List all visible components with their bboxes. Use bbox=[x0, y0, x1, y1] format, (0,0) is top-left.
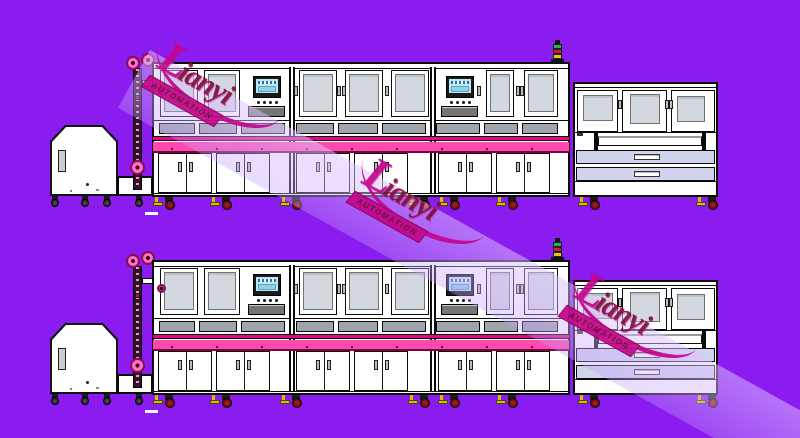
band-rivet-icon bbox=[531, 148, 533, 150]
caster-wheel-icon bbox=[420, 398, 430, 408]
cabinet-door-pair bbox=[296, 351, 350, 391]
door-handle-icon bbox=[178, 360, 182, 370]
elevator-pulley-icon bbox=[126, 254, 140, 268]
control-button-icon bbox=[456, 299, 459, 302]
caster-wheel-icon bbox=[135, 199, 143, 207]
door-split bbox=[186, 154, 187, 192]
leveling-foot-icon bbox=[153, 400, 163, 404]
enclosure-base-line bbox=[153, 391, 569, 392]
vent-window bbox=[382, 321, 426, 332]
door-handle-icon bbox=[337, 284, 341, 294]
door-handle-icon bbox=[385, 360, 389, 370]
cabinet-door-pair bbox=[496, 153, 550, 193]
screen-content bbox=[451, 86, 469, 92]
feeder-detail-dot bbox=[96, 189, 99, 191]
control-screen bbox=[446, 76, 474, 98]
door-split bbox=[186, 352, 187, 390]
door-split bbox=[524, 154, 525, 192]
door-handle-icon bbox=[374, 360, 378, 370]
caster-wheel-icon bbox=[103, 397, 111, 405]
caster-wheel-icon bbox=[508, 398, 518, 408]
feeder-detail-dot bbox=[70, 190, 72, 192]
band-rivet-icon bbox=[216, 346, 218, 348]
control-button-icon bbox=[263, 299, 266, 302]
caster-wheel-icon bbox=[81, 397, 89, 405]
feeder-detail-dot bbox=[86, 381, 89, 384]
door-handle-icon bbox=[477, 86, 481, 96]
window-panel bbox=[160, 268, 198, 315]
band-rivet-icon bbox=[441, 148, 443, 150]
keyboard-tray bbox=[441, 304, 478, 315]
cabinet-door-pair bbox=[216, 351, 270, 391]
window-glass bbox=[164, 272, 194, 310]
window-glass bbox=[528, 74, 554, 112]
leveling-foot-icon bbox=[153, 202, 163, 206]
station-tray-recess bbox=[598, 136, 702, 146]
window-glass bbox=[208, 272, 236, 310]
keyboard-tray bbox=[441, 106, 478, 117]
vent-window bbox=[338, 123, 378, 134]
band-rivet-icon bbox=[486, 346, 488, 348]
leveling-foot-icon bbox=[696, 202, 706, 206]
station-stile bbox=[594, 132, 598, 150]
vent-window bbox=[484, 123, 518, 134]
vent-window bbox=[522, 123, 558, 134]
feeder-vent bbox=[58, 348, 66, 370]
caster-wheel-icon bbox=[81, 199, 89, 207]
screen-content bbox=[258, 279, 276, 282]
vent-window bbox=[296, 321, 334, 332]
door-handle-icon bbox=[327, 360, 331, 370]
window-panel bbox=[345, 268, 383, 315]
door-handle-icon bbox=[669, 100, 673, 109]
band-rivet-icon bbox=[351, 346, 353, 348]
caster-wheel-icon bbox=[165, 398, 175, 408]
door-handle-icon bbox=[247, 360, 251, 370]
leveling-foot-icon bbox=[408, 400, 418, 404]
door-handle-icon bbox=[520, 86, 524, 96]
window-glass bbox=[395, 272, 425, 310]
door-handle-icon bbox=[458, 360, 462, 370]
door-handle-icon bbox=[458, 162, 462, 172]
leveling-foot-icon bbox=[496, 400, 506, 404]
window-panel bbox=[299, 268, 337, 315]
station-window-glass bbox=[583, 95, 613, 121]
vent-window bbox=[199, 321, 237, 332]
band-rivet-icon bbox=[261, 346, 263, 348]
floor-mark bbox=[145, 410, 158, 413]
cabinet-door-pair bbox=[354, 351, 408, 391]
drawer-handle bbox=[634, 171, 660, 177]
door-handle-icon bbox=[385, 86, 389, 96]
door-handle-icon bbox=[469, 162, 473, 172]
elevator-pulley-icon bbox=[130, 160, 145, 175]
window-glass bbox=[303, 74, 333, 112]
window-glass bbox=[349, 272, 379, 310]
window-panel bbox=[345, 70, 383, 117]
station-window-glass bbox=[630, 94, 660, 124]
window-panel bbox=[204, 268, 240, 315]
band-rivet-icon bbox=[396, 148, 398, 150]
cabinet-door-pair bbox=[496, 351, 550, 391]
window-glass bbox=[395, 74, 425, 112]
conveyor-band bbox=[153, 340, 569, 351]
door-split bbox=[466, 352, 467, 390]
elevator-marker bbox=[135, 293, 140, 298]
leveling-foot-icon bbox=[438, 400, 448, 404]
caster-wheel-icon bbox=[590, 398, 600, 408]
door-handle-icon bbox=[385, 284, 389, 294]
band-rivet-icon bbox=[306, 346, 308, 348]
drawing-canvas: Lianyi AUTOMATION Lianyi AUTOMATION Lian… bbox=[0, 0, 800, 438]
door-handle-icon bbox=[516, 360, 520, 370]
door-split bbox=[524, 352, 525, 390]
feeder-detail-dot bbox=[86, 183, 89, 186]
door-handle-icon bbox=[342, 284, 346, 294]
vent-window bbox=[436, 321, 480, 332]
leveling-foot-icon bbox=[578, 202, 588, 206]
feeder-detail-dot bbox=[96, 387, 99, 389]
conveyor-stripe bbox=[153, 334, 569, 339]
vent-window bbox=[296, 123, 334, 134]
door-handle-icon bbox=[316, 360, 320, 370]
control-button-icon bbox=[450, 101, 453, 104]
door-handle-icon bbox=[516, 162, 520, 172]
caster-wheel-icon bbox=[135, 397, 143, 405]
band-rivet-icon bbox=[396, 346, 398, 348]
caster-wheel-icon bbox=[708, 200, 718, 210]
caster-wheel-icon bbox=[222, 398, 232, 408]
control-button-icon bbox=[450, 299, 453, 302]
control-button-icon bbox=[275, 299, 278, 302]
door-handle-icon bbox=[527, 162, 531, 172]
floor-mark bbox=[145, 212, 158, 215]
caster-wheel-icon bbox=[222, 200, 232, 210]
station-roof-line bbox=[574, 87, 717, 88]
station-base-line bbox=[574, 181, 717, 182]
caster-wheel-icon bbox=[103, 199, 111, 207]
leveling-foot-icon bbox=[578, 400, 588, 404]
control-button-icon bbox=[269, 299, 272, 302]
screen-content bbox=[451, 81, 469, 84]
band-rivet-icon bbox=[531, 346, 533, 348]
elevator-pulley-icon bbox=[126, 56, 140, 70]
control-button-icon bbox=[468, 101, 471, 104]
caster-wheel-icon bbox=[450, 398, 460, 408]
door-split bbox=[382, 352, 383, 390]
caster-wheel-icon bbox=[51, 199, 59, 207]
door-handle-icon bbox=[342, 86, 346, 96]
band-rivet-icon bbox=[441, 346, 443, 348]
cabinet-door-pair bbox=[158, 153, 212, 193]
leveling-foot-icon bbox=[210, 202, 220, 206]
keyboard-tray bbox=[248, 304, 285, 315]
leveling-foot-icon bbox=[496, 202, 506, 206]
window-glass bbox=[303, 272, 333, 310]
caster-wheel-icon bbox=[165, 200, 175, 210]
leveling-foot-icon bbox=[280, 400, 290, 404]
vent-window bbox=[241, 321, 285, 332]
door-handle-icon bbox=[618, 100, 622, 109]
door-handle-icon bbox=[337, 86, 341, 96]
band-rivet-icon bbox=[351, 148, 353, 150]
window-panel bbox=[299, 70, 337, 117]
door-split bbox=[324, 352, 325, 390]
door-split bbox=[466, 154, 467, 192]
door-handle-icon bbox=[236, 360, 240, 370]
door-handle-icon bbox=[178, 162, 182, 172]
door-handle-icon bbox=[527, 360, 531, 370]
band-rivet-icon bbox=[171, 346, 173, 348]
vent-window bbox=[159, 321, 195, 332]
station-detail-mark bbox=[577, 133, 583, 136]
window-glass bbox=[490, 74, 510, 112]
band-rivet-icon bbox=[171, 148, 173, 150]
door-handle-icon bbox=[189, 162, 193, 172]
control-button-icon bbox=[456, 101, 459, 104]
vent-window bbox=[382, 123, 426, 134]
leveling-foot-icon bbox=[210, 400, 220, 404]
caster-wheel-icon bbox=[508, 200, 518, 210]
screen-content bbox=[258, 284, 276, 290]
door-handle-icon bbox=[189, 360, 193, 370]
door-split bbox=[244, 352, 245, 390]
vent-window bbox=[338, 321, 378, 332]
vent-window bbox=[436, 123, 480, 134]
control-button-icon bbox=[462, 101, 465, 104]
band-rivet-icon bbox=[486, 148, 488, 150]
caster-wheel-icon bbox=[590, 200, 600, 210]
control-screen bbox=[253, 274, 281, 296]
signal-tower-base bbox=[551, 257, 564, 261]
elevator-pulley-icon bbox=[130, 358, 145, 373]
window-panel bbox=[524, 70, 558, 117]
window-panel bbox=[391, 70, 429, 117]
door-handle-icon bbox=[294, 284, 298, 294]
feeder-vent bbox=[58, 150, 66, 172]
station-stile bbox=[702, 132, 706, 150]
door-handle-icon bbox=[469, 360, 473, 370]
cabinet-door-pair bbox=[438, 351, 492, 391]
signal-tower-base bbox=[551, 59, 564, 63]
window-glass bbox=[349, 74, 379, 112]
window-knob-icon bbox=[157, 284, 166, 293]
caster-wheel-icon bbox=[292, 398, 302, 408]
window-panel bbox=[486, 70, 514, 117]
caster-wheel-icon bbox=[51, 397, 59, 405]
feeder-detail-dot bbox=[70, 388, 72, 390]
drawer-handle bbox=[634, 154, 660, 160]
control-button-icon bbox=[257, 299, 260, 302]
station-window-glass bbox=[677, 96, 705, 122]
cabinet-door-pair bbox=[158, 351, 212, 391]
